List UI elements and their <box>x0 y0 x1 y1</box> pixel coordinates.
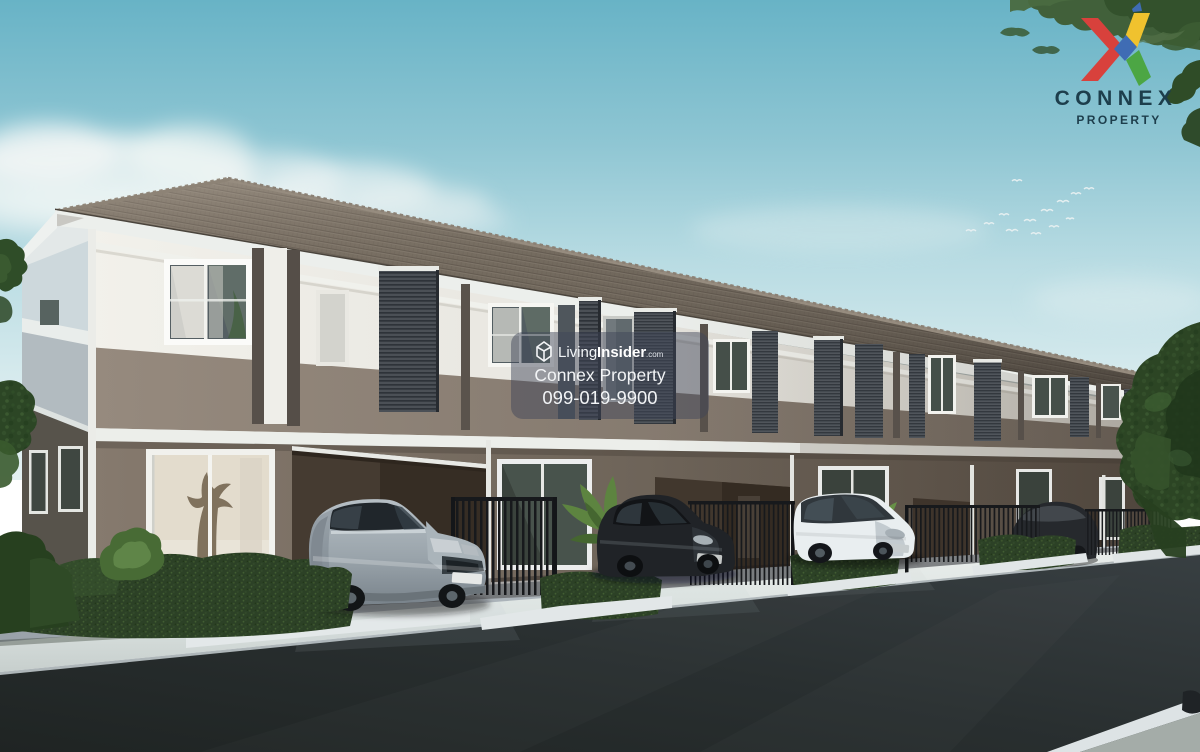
svg-text:Connex Property: Connex Property <box>534 365 666 385</box>
svg-text:.com: .com <box>646 350 664 359</box>
svg-text:PROPERTY: PROPERTY <box>1076 113 1161 127</box>
svg-text:CONNEX: CONNEX <box>1055 87 1178 110</box>
svg-text:Insider: Insider <box>597 344 646 361</box>
svg-text:Living: Living <box>558 344 597 361</box>
svg-text:099-019-9900: 099-019-9900 <box>542 387 657 408</box>
